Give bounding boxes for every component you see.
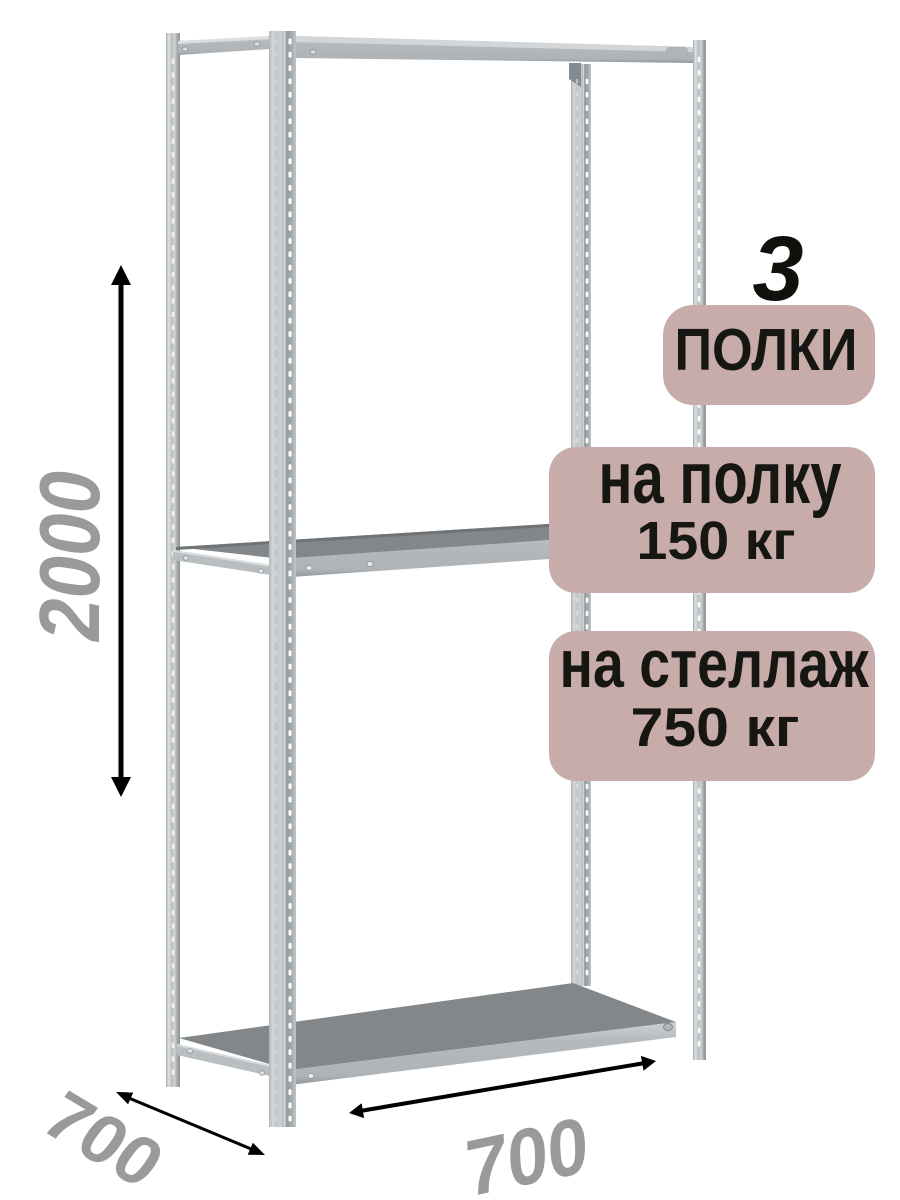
svg-text:на стеллаж: на стеллаж: [560, 626, 870, 702]
svg-text:ПОЛКИ: ПОЛКИ: [675, 317, 858, 383]
svg-text:150 кг: 150 кг: [637, 511, 796, 571]
svg-text:3: 3: [752, 218, 803, 320]
svg-text:на полку: на полку: [599, 438, 842, 519]
svg-text:750 кг: 750 кг: [631, 696, 800, 758]
svg-text:2000: 2000: [23, 471, 118, 643]
